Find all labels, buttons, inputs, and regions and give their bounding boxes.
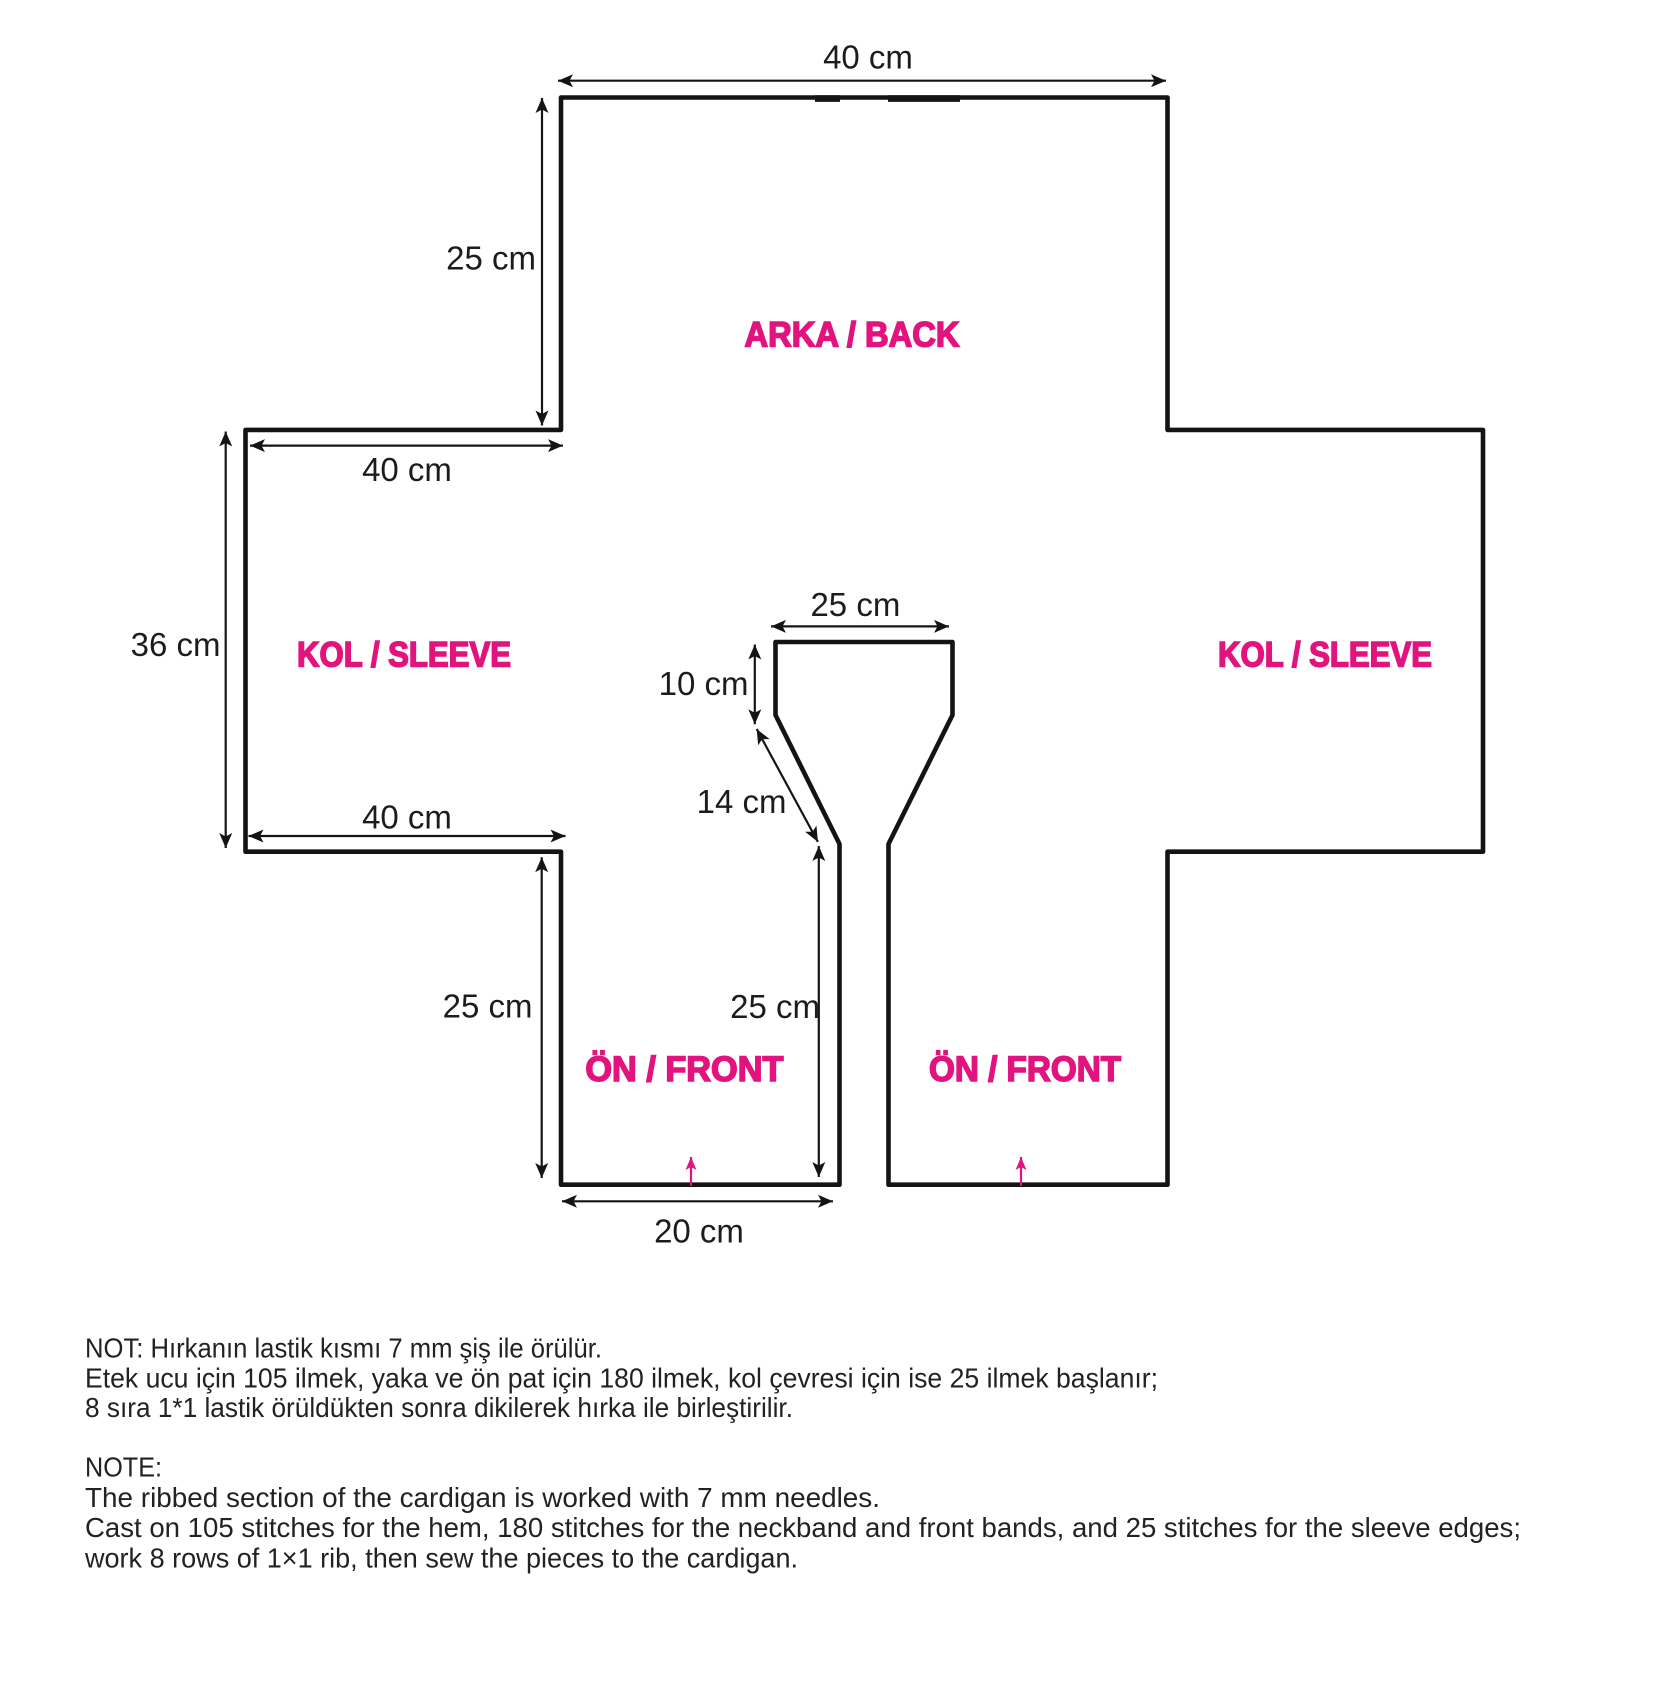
svg-text:40 cm: 40 cm xyxy=(362,799,452,836)
svg-text:ÖN / FRONT: ÖN / FRONT xyxy=(929,1050,1121,1089)
svg-text:ARKA / BACK: ARKA / BACK xyxy=(745,316,960,355)
svg-text:36 cm: 36 cm xyxy=(131,626,221,663)
svg-text:10 cm: 10 cm xyxy=(659,665,749,702)
svg-text:Etek ucu için 105 ilmek, yaka: Etek ucu için 105 ilmek, yaka ve ön pat … xyxy=(85,1362,1158,1393)
svg-text:25 cm: 25 cm xyxy=(443,988,533,1025)
svg-text:NOTE:: NOTE: xyxy=(85,1452,162,1483)
svg-text:25 cm: 25 cm xyxy=(810,586,900,623)
svg-text:40 cm: 40 cm xyxy=(362,451,452,488)
svg-text:20 cm: 20 cm xyxy=(654,1213,744,1250)
svg-text:KOL / SLEEVE: KOL / SLEEVE xyxy=(297,635,511,674)
svg-text:25 cm: 25 cm xyxy=(446,240,536,277)
svg-text:8 sıra 1*1 lastik örüldükten s: 8 sıra 1*1 lastik örüldükten sonra dikil… xyxy=(85,1392,793,1423)
svg-text:Cast on 105 stitches for the h: Cast on 105 stitches for the hem, 180 st… xyxy=(85,1512,1521,1543)
svg-text:NOT: Hırkanın lastik kısmı 7 m: NOT: Hırkanın lastik kısmı 7 mm şiş ile … xyxy=(85,1333,602,1364)
svg-text:25 cm: 25 cm xyxy=(730,988,820,1025)
svg-text:work 8 rows of 1×1 rib, then s: work 8 rows of 1×1 rib, then sew the pie… xyxy=(84,1543,798,1574)
svg-text:14 cm: 14 cm xyxy=(697,783,787,820)
svg-text:ÖN / FRONT: ÖN / FRONT xyxy=(585,1050,783,1089)
svg-text:The ribbed section of the card: The ribbed section of the cardigan is wo… xyxy=(85,1482,880,1513)
svg-text:40 cm: 40 cm xyxy=(823,39,913,76)
svg-text:KOL / SLEEVE: KOL / SLEEVE xyxy=(1218,635,1432,674)
